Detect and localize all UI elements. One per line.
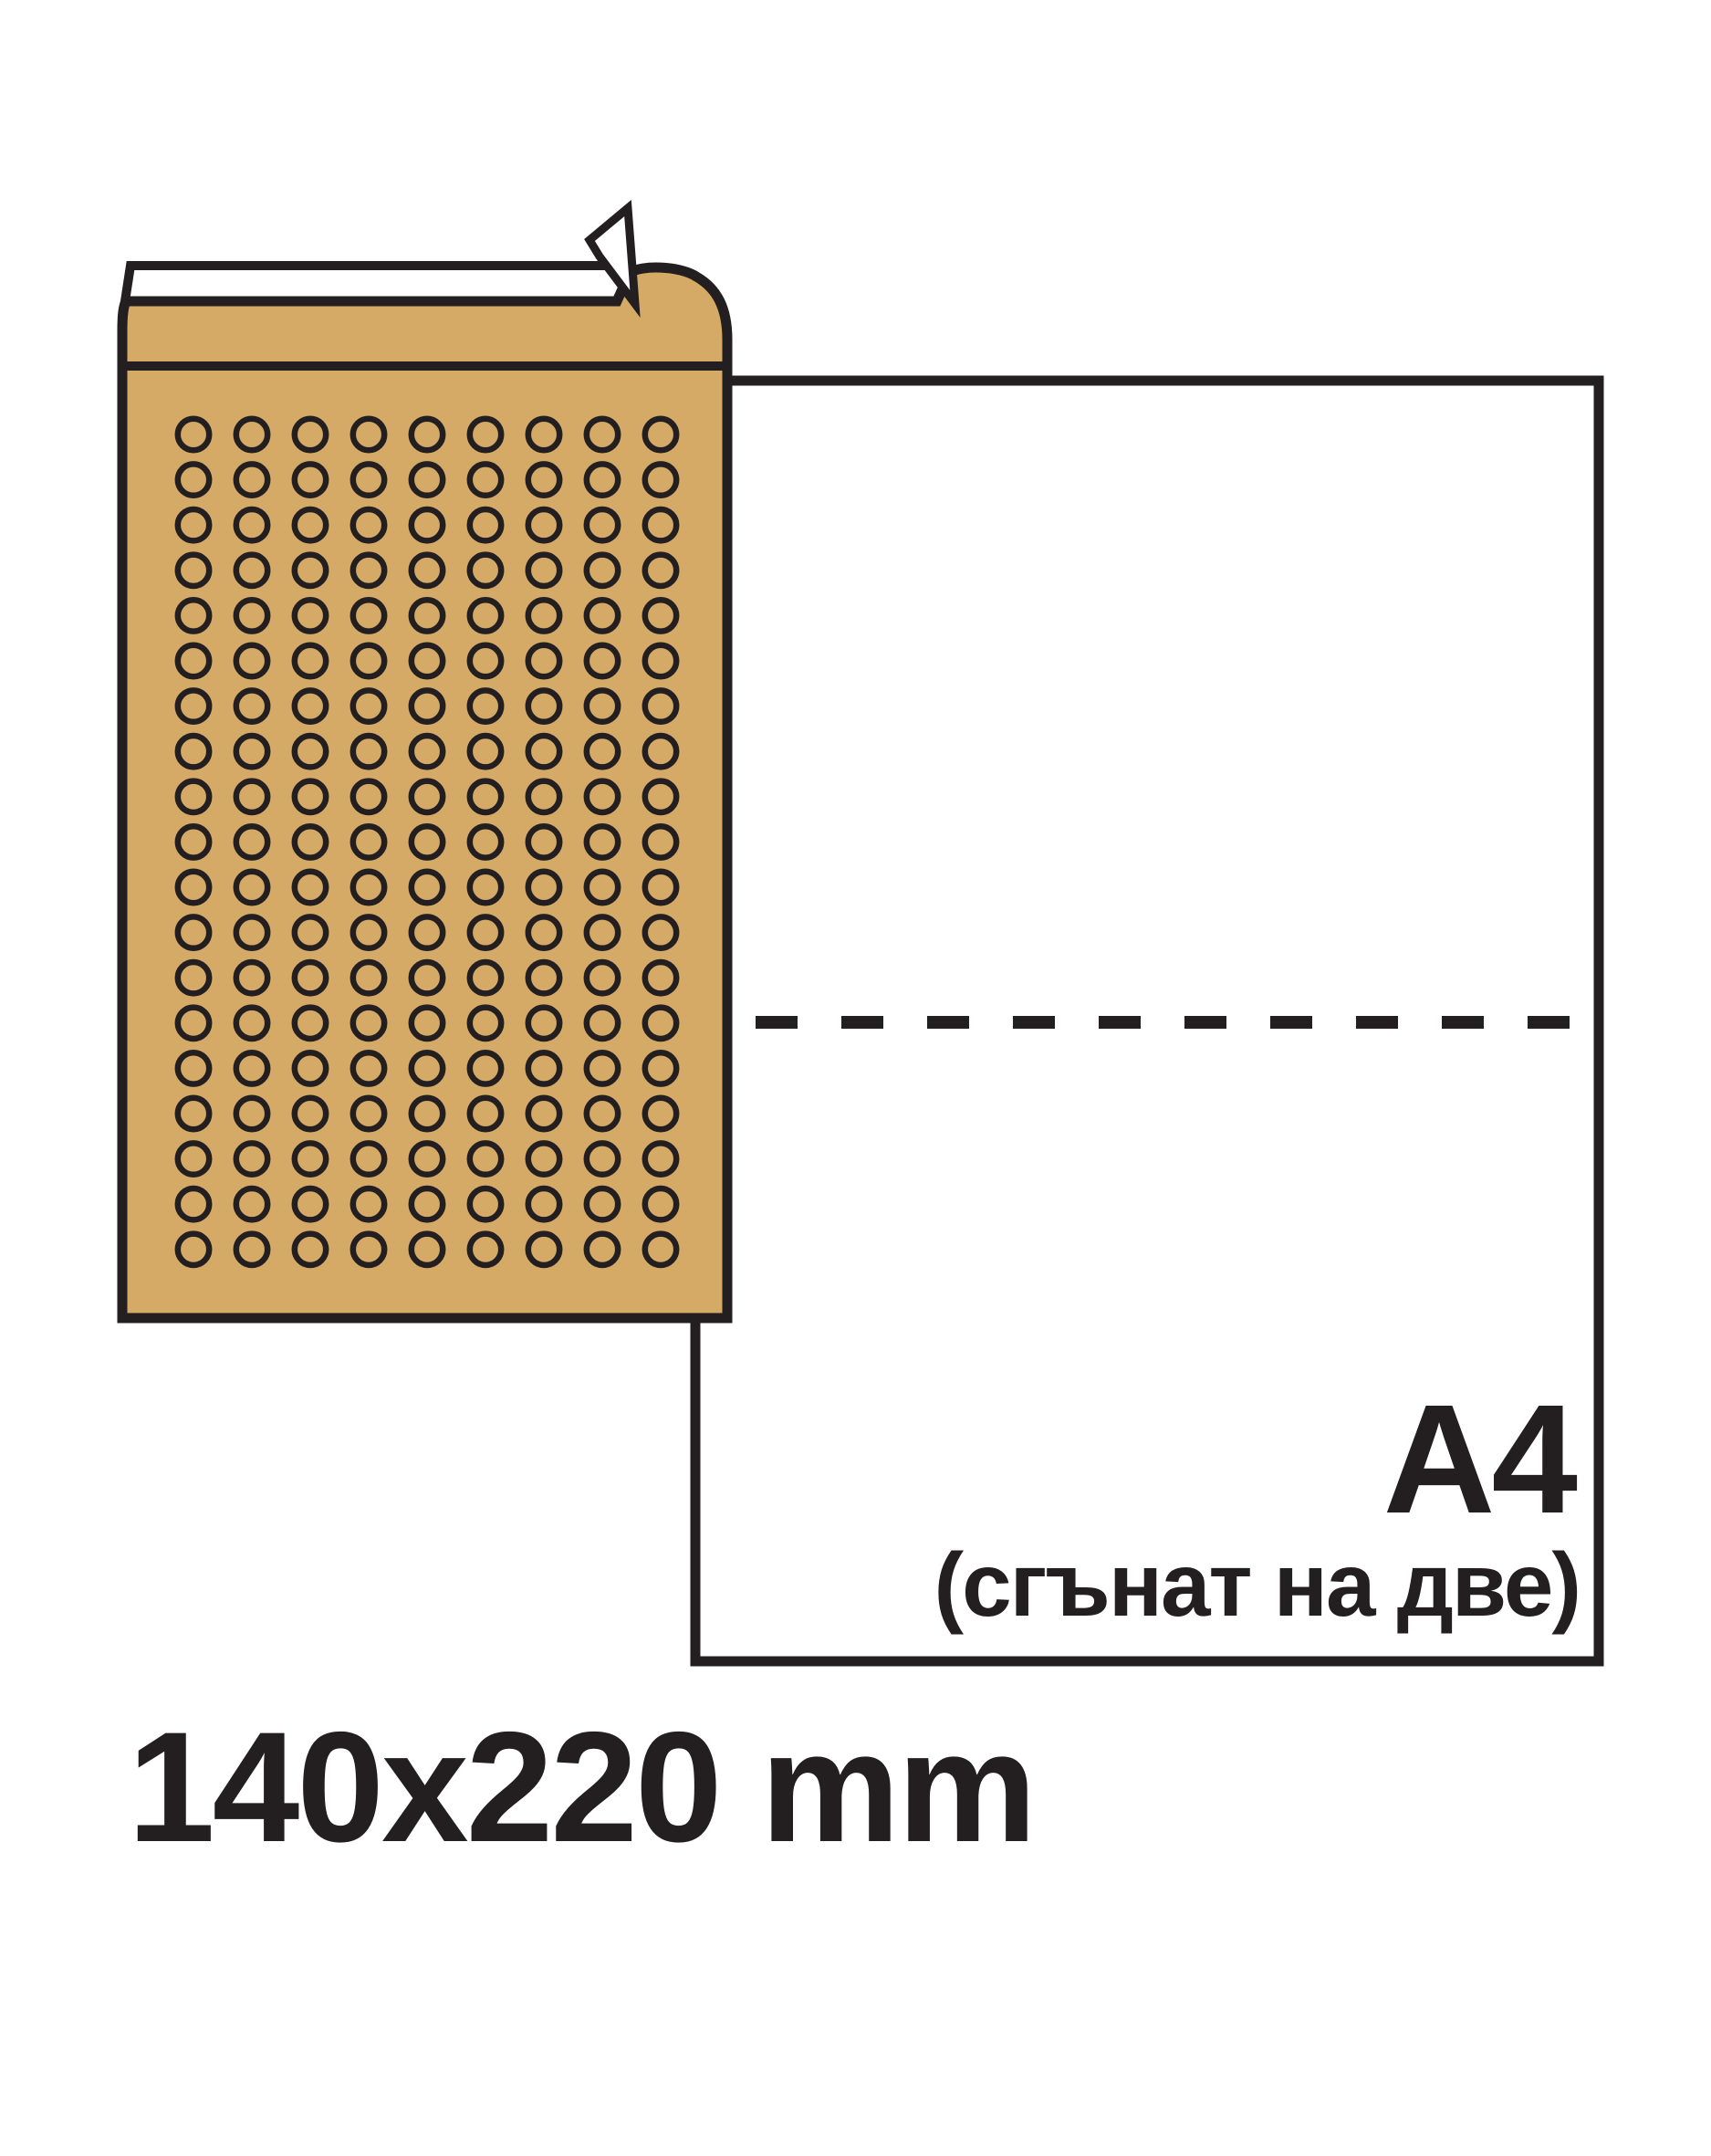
peel-strip xyxy=(125,266,633,301)
envelope-size-label: 140x220 mm xyxy=(128,1700,1034,1875)
a4-sublabel: (сгънат на две) xyxy=(934,1534,1580,1635)
product-size-illustration: A4 (сгънат на две) 140x220 mm xyxy=(0,0,1711,2156)
envelope-illustration xyxy=(122,208,727,1318)
a4-label: A4 xyxy=(1383,1373,1578,1546)
envelope-body xyxy=(122,267,727,1318)
